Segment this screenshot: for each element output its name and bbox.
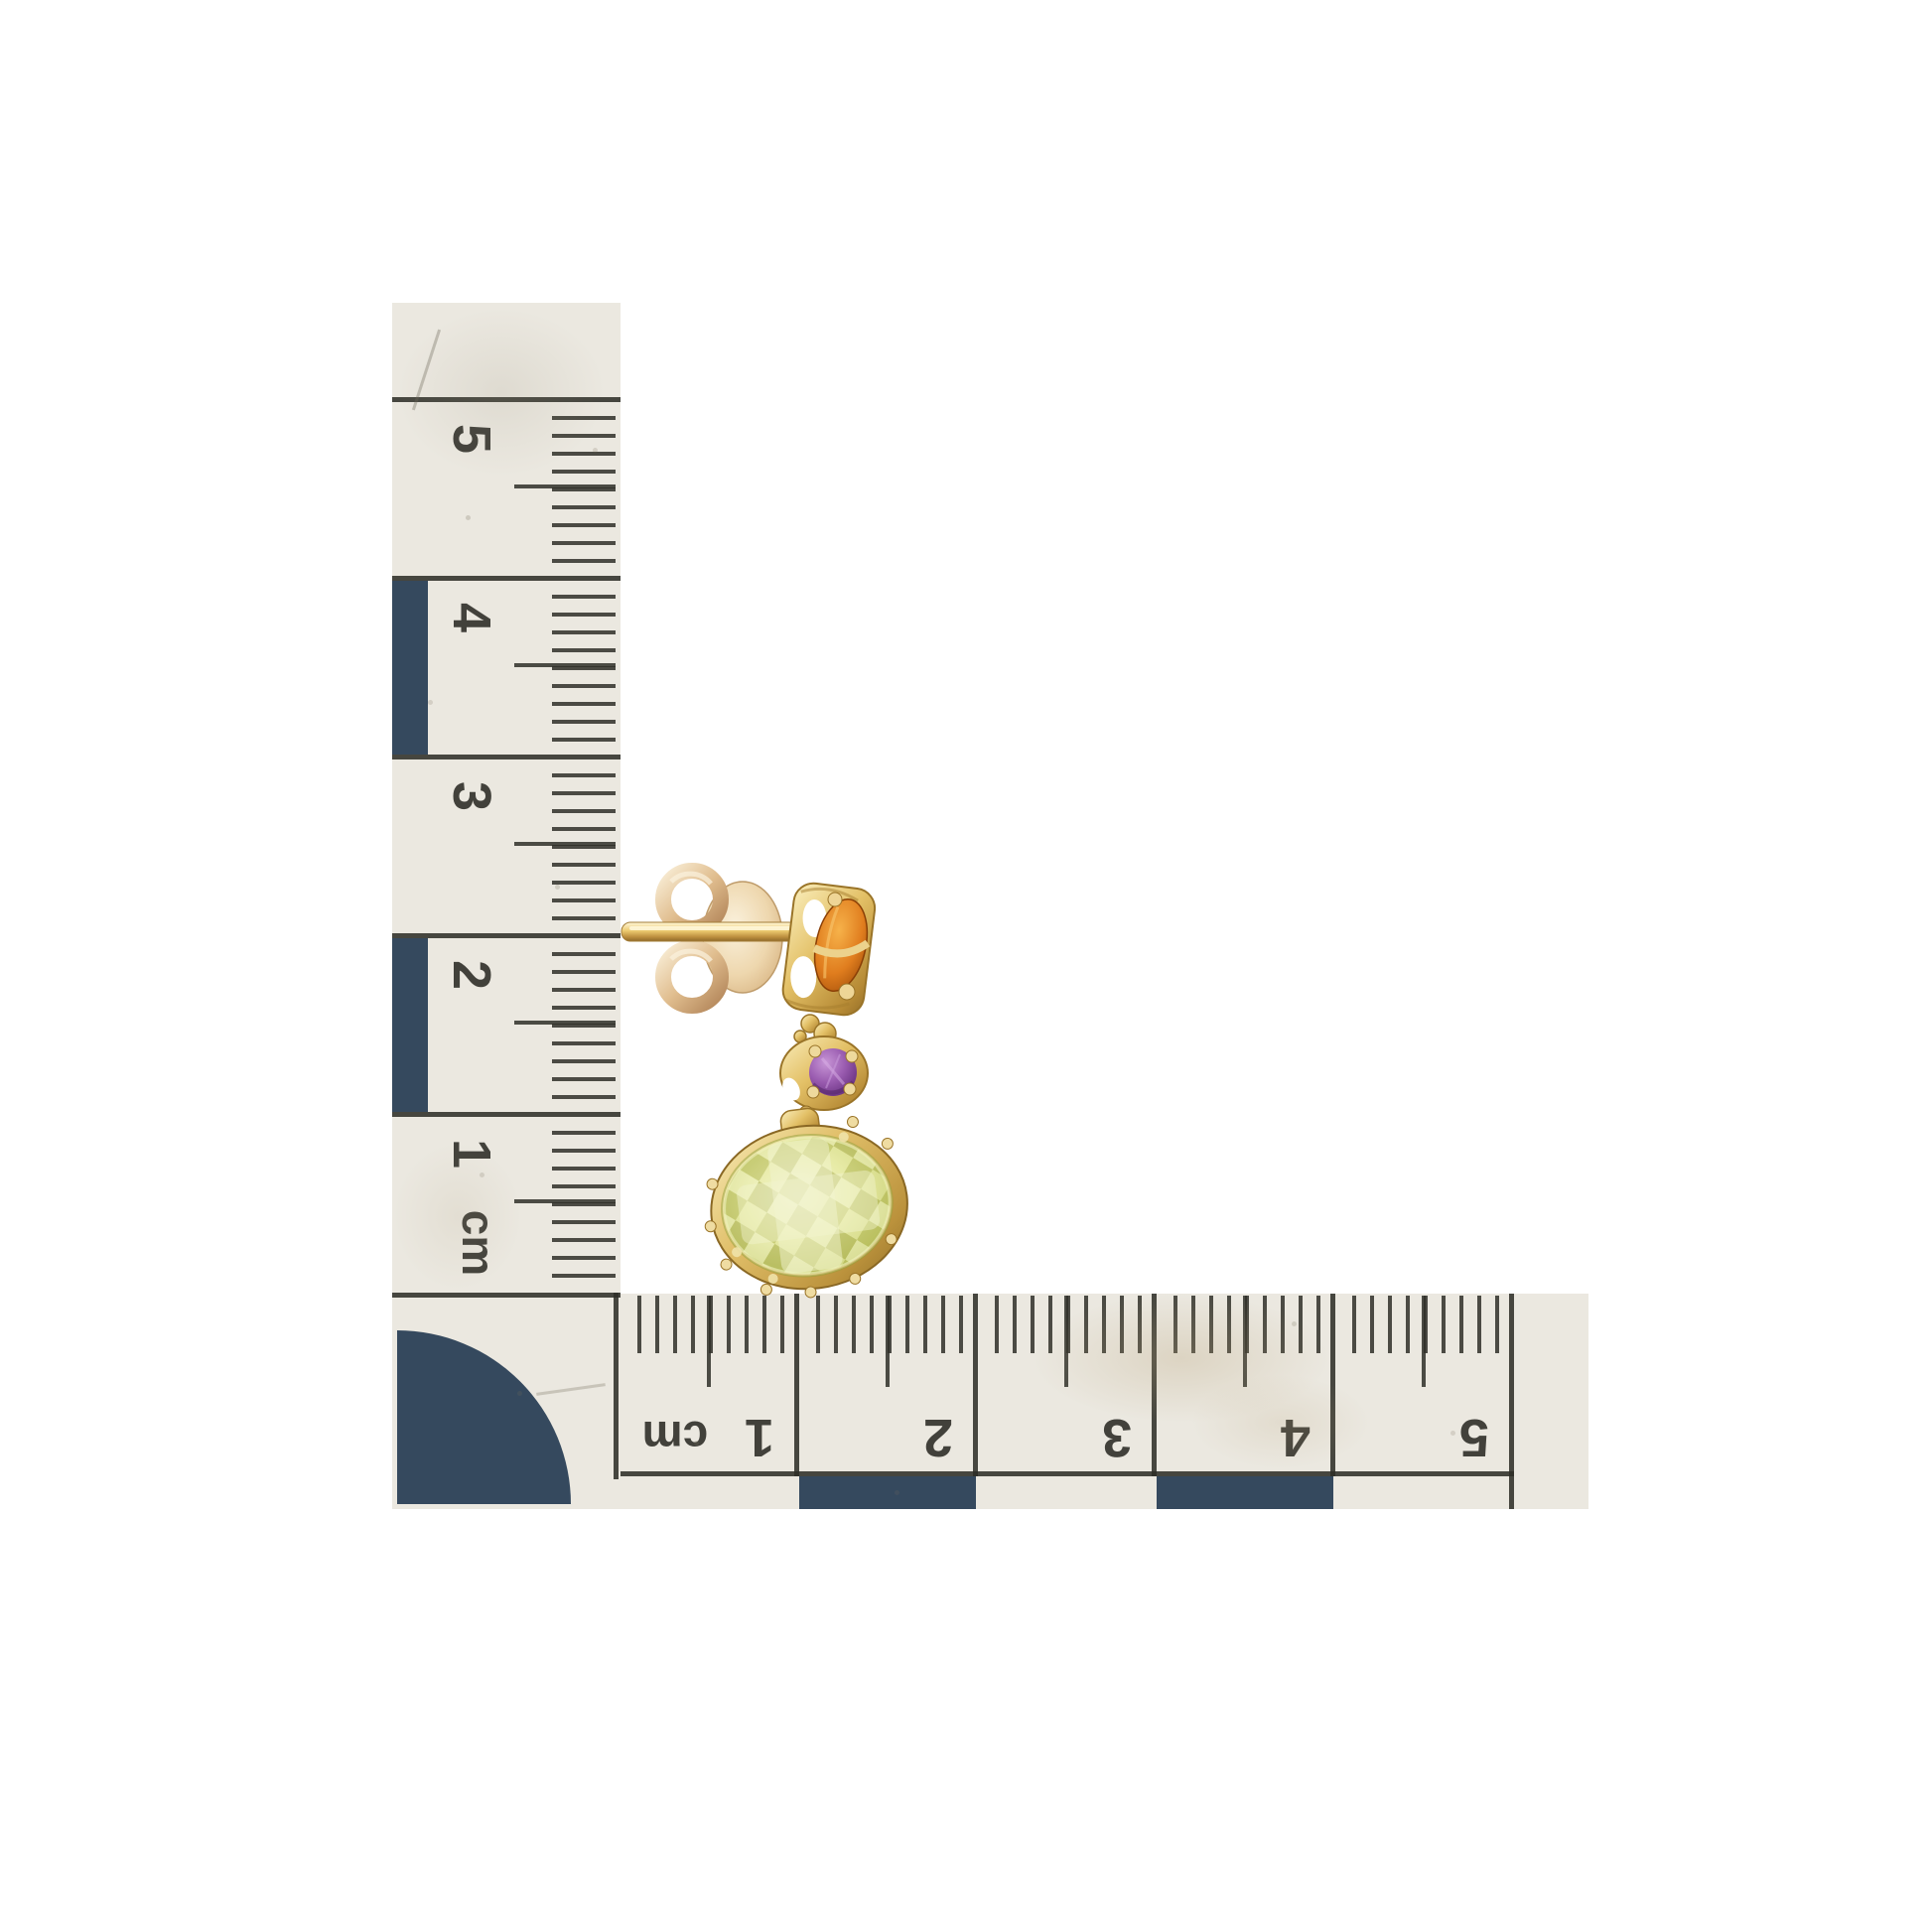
vertical-ruler-number: 4 <box>442 588 501 647</box>
horizontal-half-cm-tick <box>1422 1296 1426 1387</box>
horizontal-bottom-line <box>621 1471 1514 1476</box>
vertical-scale-block <box>392 938 428 1112</box>
vertical-mm-ticks <box>552 402 616 576</box>
horizontal-cm-line-1 <box>794 1294 799 1476</box>
horizontal-half-cm-tick <box>1243 1296 1247 1387</box>
horizontal-ruler-number: 2 <box>908 1408 968 1467</box>
horizontal-half-cm-tick <box>1064 1296 1068 1387</box>
lemon-quartz-drop <box>692 1098 917 1310</box>
horizontal-cm-line-2 <box>973 1294 978 1476</box>
vertical-ruler-unit-label: cm <box>449 1213 508 1273</box>
horizontal-ruler-number: 1 <box>730 1408 789 1467</box>
horizontal-scale-block <box>799 1476 976 1509</box>
horizontal-cm-line-4 <box>1330 1294 1335 1476</box>
horizontal-ruler-number: 5 <box>1445 1408 1504 1467</box>
horizontal-ruler-number: 4 <box>1266 1408 1325 1467</box>
horizontal-cm-line-3 <box>1152 1294 1157 1476</box>
citrine-prong <box>828 893 842 906</box>
earring-post <box>621 922 806 941</box>
horizontal-ruler-number: 3 <box>1087 1408 1147 1467</box>
vertical-ruler-number: 2 <box>442 945 501 1005</box>
vertical-ruler-number: 3 <box>442 766 501 826</box>
vertical-scale-block <box>392 581 428 755</box>
horizontal-ruler-unit-label: cm <box>635 1408 715 1467</box>
corner-right-line <box>614 1293 619 1479</box>
vertical-ruler-number: 1 <box>442 1124 501 1183</box>
vertical-ruler-number: 5 <box>442 409 501 469</box>
horizontal-cm-line-5 <box>1509 1294 1514 1509</box>
earring-illustration <box>586 844 963 1320</box>
paper-speckles <box>0 0 3 3</box>
vertical-half-cm-tick <box>514 663 616 667</box>
horizontal-scale-block <box>1157 1476 1333 1509</box>
photo-stage: 5 4 3 2 1 cm cm 1 2 3 4 5 <box>0 0 1932 1932</box>
vertical-mm-ticks <box>552 581 616 755</box>
vertical-half-cm-tick <box>514 484 616 488</box>
citrine-prong <box>839 984 855 1000</box>
